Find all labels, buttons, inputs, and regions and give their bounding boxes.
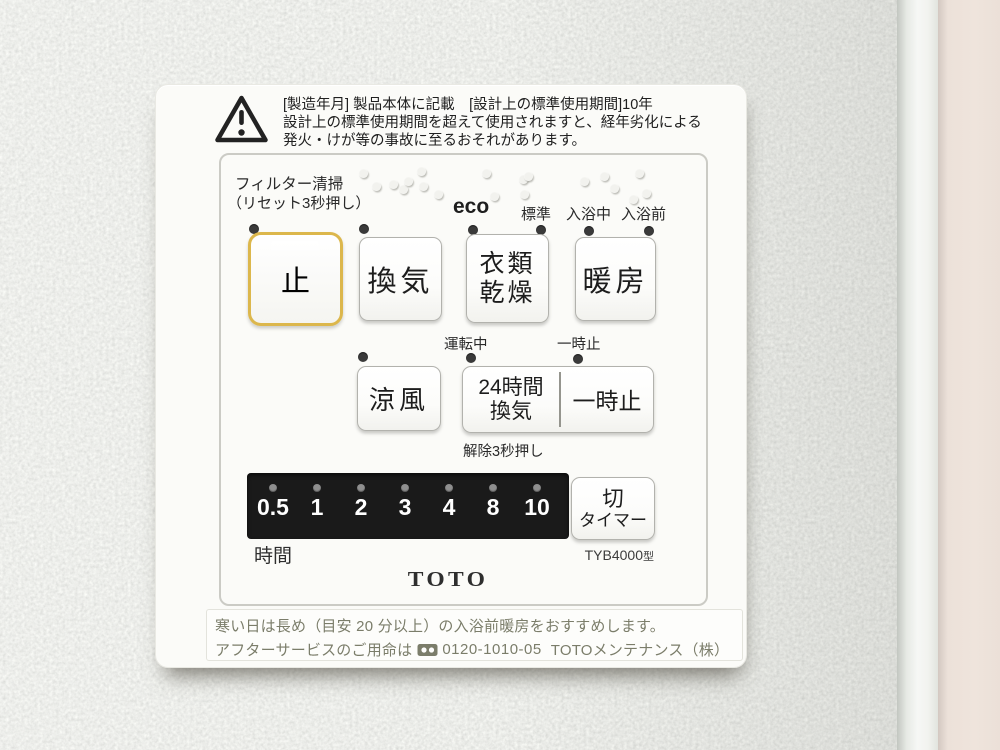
eco-label: eco bbox=[453, 195, 489, 219]
release-hint: 解除3秒押し bbox=[463, 440, 544, 461]
braille-dot bbox=[389, 180, 398, 189]
cool-breeze-button-label: 涼風 bbox=[369, 380, 429, 417]
timer-led-icon bbox=[269, 484, 277, 492]
control-panel: [製造年月] 製品本体に記載 [設計上の標準使用期間]10年 設計上の標準使用期… bbox=[155, 84, 747, 668]
braille-dot bbox=[600, 172, 609, 181]
braille-dot bbox=[610, 184, 619, 193]
clothes-dry-button-label: 衣類 乾燥 bbox=[479, 250, 535, 308]
braille-dot bbox=[524, 172, 533, 181]
vent24h-pause-button-group: 24時間 換気 一時止 bbox=[462, 366, 654, 433]
running-label: 運転中 bbox=[444, 333, 488, 354]
warning-line-1: [製造年月] 製品本体に記載 [設計上の標準使用期間]10年 bbox=[283, 96, 653, 114]
timer-led-icon bbox=[489, 484, 497, 492]
led-pause bbox=[573, 354, 583, 364]
service-sticker: 寒い日は長め（目安 20 分以上）の入浴前暖房をおすすめします。 アフターサービ… bbox=[206, 609, 743, 661]
heating-button-label: 暖房 bbox=[582, 258, 648, 300]
braille-dot bbox=[482, 169, 491, 178]
timer-led-icon bbox=[445, 484, 453, 492]
led-pre-bath bbox=[644, 226, 654, 236]
led-in-bath bbox=[584, 226, 594, 236]
off-timer-button-label-1: 切 bbox=[602, 488, 624, 511]
pause-indicator-label: 一時止 bbox=[557, 333, 601, 354]
timer-led-icon bbox=[313, 484, 321, 492]
wall-corner-trim bbox=[897, 0, 940, 750]
advice-text: 寒い日は長め（目安 20 分以上）の入浴前暖房をおすすめします。 bbox=[215, 615, 742, 636]
braille-dot bbox=[642, 189, 651, 198]
timer-led-icon bbox=[401, 484, 409, 492]
pause-button-label: 一時止 bbox=[573, 382, 642, 416]
timer-led-icon bbox=[357, 484, 365, 492]
ventilation-button[interactable]: 換気 bbox=[359, 237, 442, 321]
timer-value: 1 bbox=[295, 473, 339, 539]
timer-value: 2 bbox=[339, 473, 383, 539]
braille-dot bbox=[419, 182, 428, 191]
heating-button[interactable]: 暖房 bbox=[575, 237, 656, 321]
scene: [製造年月] 製品本体に記載 [設計上の標準使用期間]10年 設計上の標準使用期… bbox=[0, 0, 1000, 750]
led-running bbox=[466, 353, 476, 363]
timer-value: 3 bbox=[383, 473, 427, 539]
freedial-icon bbox=[417, 643, 438, 657]
braille-dot bbox=[520, 190, 529, 199]
off-timer-button-label-2: タイマー bbox=[579, 511, 647, 530]
in-bath-label: 入浴中 bbox=[566, 203, 611, 224]
stop-button[interactable]: 止 bbox=[248, 232, 343, 326]
timer-value: 10 bbox=[515, 473, 559, 539]
timer-led-icon bbox=[533, 484, 541, 492]
filter-clean-label: フィルター清掃 bbox=[235, 172, 343, 194]
timer-value: 8 bbox=[471, 473, 515, 539]
vent24h-button-label: 24時間 換気 bbox=[478, 376, 543, 424]
braille-dot bbox=[635, 169, 644, 178]
filter-reset-hint: （リセット3秒押し） bbox=[227, 192, 370, 213]
braille-dot bbox=[372, 182, 381, 191]
warning-line-2: 設計上の標準使用期間を超えて使用されますと、経年劣化による bbox=[283, 114, 702, 132]
timer-value: 0.5 bbox=[251, 473, 295, 539]
ventilation-button-label: 換気 bbox=[367, 258, 433, 300]
service-prefix: アフターサービスのご用命は bbox=[215, 639, 412, 660]
pre-bath-label: 入浴前 bbox=[621, 203, 666, 224]
vent24h-button[interactable]: 24時間 換気 bbox=[463, 367, 559, 432]
braille-dot bbox=[490, 192, 499, 201]
timer-scale: 0.5 1 2 3 4 8 10 bbox=[247, 473, 569, 539]
button-gloss bbox=[271, 241, 319, 254]
braille-dot bbox=[580, 177, 589, 186]
cool-breeze-button[interactable]: 涼風 bbox=[357, 366, 441, 431]
service-phone: 0120-1010-05 bbox=[442, 641, 541, 658]
model-number-text: TYB4000 bbox=[585, 547, 643, 563]
standard-label: 標準 bbox=[521, 203, 551, 224]
braille-dot bbox=[404, 177, 413, 186]
model-suffix: 型 bbox=[643, 551, 654, 563]
adjacent-wall bbox=[938, 0, 1000, 750]
brand-logo: TOTO bbox=[408, 567, 489, 592]
timer-value: 4 bbox=[427, 473, 471, 539]
service-company: TOTOメンテナンス（株） bbox=[551, 639, 729, 660]
braille-dot bbox=[359, 169, 368, 178]
stop-button-label: 止 bbox=[281, 258, 310, 300]
led-cool-breeze bbox=[358, 352, 368, 362]
pause-button[interactable]: 一時止 bbox=[559, 372, 653, 428]
warning-line-3: 発火・けが等の事故に至るおそれがあります。 bbox=[283, 132, 586, 150]
model-number: TYB4000型 bbox=[554, 547, 654, 564]
off-timer-button[interactable]: 切 タイマー bbox=[571, 477, 655, 540]
braille-dot bbox=[434, 190, 443, 199]
warning-triangle-icon bbox=[213, 94, 270, 146]
braille-dot bbox=[417, 167, 426, 176]
led-ventilation bbox=[359, 224, 369, 234]
hours-unit-label: 時間 bbox=[254, 541, 292, 568]
braille-dot bbox=[399, 185, 408, 194]
clothes-dry-button[interactable]: 衣類 乾燥 bbox=[466, 234, 549, 323]
